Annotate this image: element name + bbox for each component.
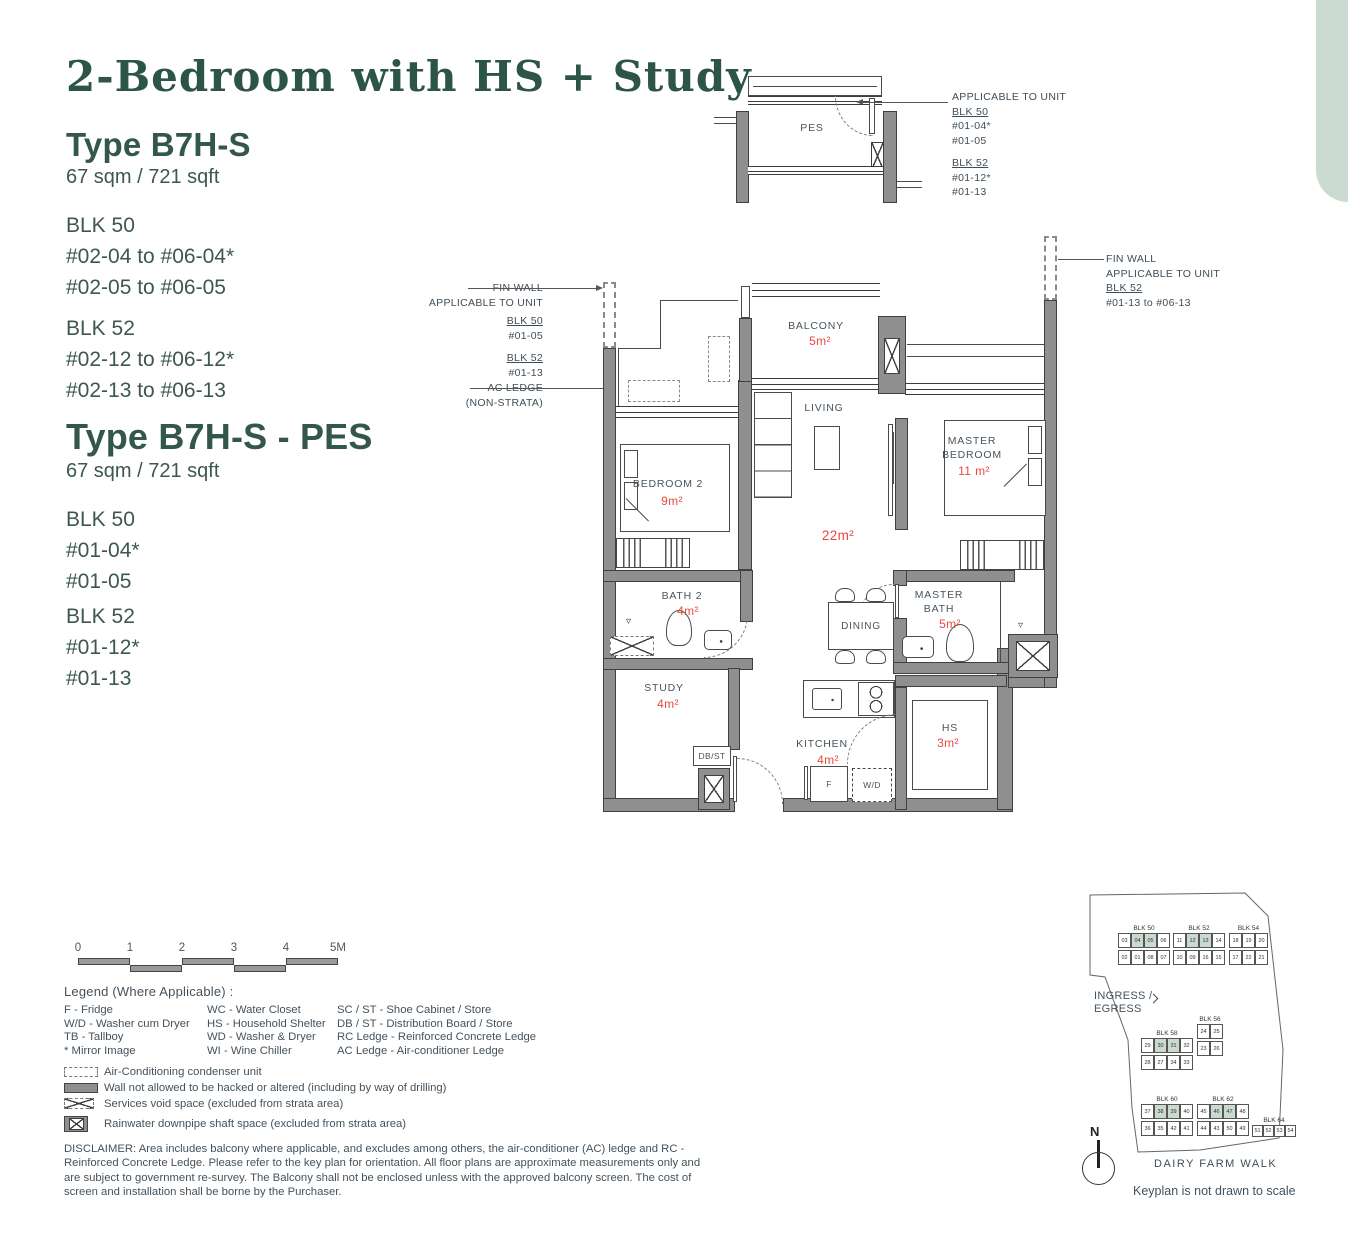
scale-segment [78,958,130,965]
legend-entry: * Mirror Image [64,1045,190,1059]
legend-symbol-label: Air-Conditioning condenser unit [104,1066,262,1078]
sage-decorative-shape [1316,0,1348,202]
ledge-line [660,300,738,301]
fin-wall-left-callout: FIN WALL APPLICABLE TO UNIT BLK 50 #01-0… [335,281,543,380]
type-b7hs-area: 67 sqm / 721 sqft [66,166,219,189]
fin-wall-right-callout: FIN WALL APPLICABLE TO UNIT BLK 52 #01-1… [1106,252,1220,310]
unit-range: #02-05 to #06-05 [66,272,234,303]
balcony-railing [752,283,880,297]
keyplan-unit: 47 [1223,1104,1236,1119]
basin [902,636,934,658]
kitchen-sink [812,688,842,710]
room-label-living: LIVING [804,402,843,414]
keyplan-unit-row: 45464748 [1197,1104,1249,1119]
keyplan-unit: 03 [1118,933,1131,948]
legend-entry: SC / ST - Shoe Cabinet / Store [337,1004,536,1018]
keyplan-block: BLK 603738394036354241 [1141,1096,1193,1136]
unit: #01-13 to #06-13 [1106,296,1220,311]
pes-applicable-callout: APPLICABLE TO UNIT BLK 50 #01-04* #01-05… [952,90,1066,200]
scale-tick: 2 [179,942,185,954]
keyplan-unit: 53 [1274,1125,1285,1137]
keyplan-unit: 44 [1197,1121,1210,1136]
keyplan-unit: 25 [1210,1024,1223,1039]
wall-segment [739,318,752,382]
scale-tick: 0 [75,942,81,954]
type-b7hs-blk52: BLK 52 #02-12 to #06-12* #02-13 to #06-1… [66,313,234,406]
type-b7hs-pes-blk52: BLK 52 #01-12* #01-13 [66,601,140,694]
legend-entry: DB / ST - Distribution Board / Store [337,1018,536,1032]
room-area-master-bedroom: 11 m² [958,464,990,478]
north-label: N [1090,1124,1099,1139]
rain-symbol-icon [64,1116,104,1132]
legend-entry: W/D - Washer cum Dryer [64,1018,190,1032]
room-label-bath2: BATH 2 [662,590,703,602]
keyplan-unit: 52 [1263,1125,1274,1137]
road-label: DAIRY FARM WALK [1154,1158,1277,1170]
keyplan-unit: 07 [1157,950,1170,965]
blk-name: BLK 52 [66,601,140,632]
shower-icon: ▿ [626,616,631,627]
keyplan-unit-row: 28273433 [1141,1055,1193,1070]
blk-name: BLK 52 [952,156,1066,171]
type-b7hs-pes-heading: Type B7H-S - PES [66,416,373,458]
type-b7hs-pes-area: 67 sqm / 721 sqft [66,460,219,483]
room-area-bedroom2: 9m² [661,494,683,508]
legend-title: Legend (Where Applicable) : [64,984,233,999]
north-compass-icon [1082,1152,1115,1185]
keyplan-unit-row: 2425 [1197,1024,1223,1039]
keyplan-block-name: BLK 50 [1118,925,1170,932]
legend-symbol-row: Rainwater downpipe shaft space (excluded… [64,1116,446,1131]
legend-symbol-row: Services void space (excluded from strat… [64,1096,446,1111]
unit-range: #01-12* [66,632,140,663]
legend-entry: HS - Household Shelter [207,1018,326,1032]
balcony-rail-return [741,286,750,318]
keyplan-unit: 13 [1199,933,1212,948]
keyplan-block: BLK 54181920172221 [1229,925,1268,965]
window [905,383,1044,395]
door-leaf [804,766,808,800]
type-b7hs-blk50: BLK 50 #02-04 to #06-04* #02-05 to #06-0… [66,210,234,303]
washer-dryer-box: W/D [852,768,892,802]
keyplan-unit: 49 [1236,1121,1249,1136]
unit: #01-05 [952,134,1066,149]
keyplan-unit: 10 [1173,950,1186,965]
pillow [1028,426,1042,454]
keyplan-unit: 18 [1229,933,1242,948]
legend-col-3: SC / ST - Shoe Cabinet / StoreDB / ST - … [337,1004,536,1058]
legend-symbol-label: Rainwater downpipe shaft space (excluded… [104,1118,406,1130]
arrow-icon [856,99,863,105]
keyplan-unit: 22 [1242,950,1255,965]
keyplan-unit: 17 [1229,950,1242,965]
ledge-line [907,344,1044,345]
keyplan-block-name: BLK 52 [1173,925,1225,932]
scale-segment [130,965,182,972]
legend-symbol-label: Wall not allowed to be hacked or altered… [104,1082,446,1094]
blk-name: BLK 52 [66,313,234,344]
unit: #01-12* [952,171,1066,186]
keyplan-unit: 19 [1242,933,1255,948]
blk-name: BLK 50 [952,105,1066,120]
keyplan-unit: 20 [1255,933,1268,948]
unit-range: #01-04* [66,535,140,566]
keyplan-unit: 36 [1141,1121,1154,1136]
scale-segment [286,958,338,965]
keyplan-unit: 21 [1255,950,1268,965]
chair [866,588,886,602]
keyplan-block-name: BLK 54 [1229,925,1268,932]
keyplan-unit: 12 [1186,933,1199,948]
legend-col-2: WC - Water ClosetHS - Household ShelterW… [207,1004,326,1058]
room-label-balcony: BALCONY [788,320,844,332]
keyplan-block-name: BLK 62 [1197,1096,1249,1103]
keyplan-unit-row: 29303132 [1141,1038,1193,1053]
shower-icon: ▿ [1018,620,1023,631]
keyplan-unit-row: 36354241 [1141,1121,1193,1136]
leader-line [468,288,598,289]
sliding-window [752,378,878,390]
ledge-line [714,117,736,118]
keyplan-unit: 05 [1144,933,1157,948]
keyplan-unit: 28 [1141,1055,1154,1070]
room-area-balcony: 5m² [809,334,831,348]
keyplan-unit: 39 [1167,1104,1180,1119]
legend-entry: F - Fridge [64,1004,190,1018]
wall-segment [728,668,740,750]
legend-entry: WI - Wine Chiller [207,1045,326,1059]
scale-segment [234,965,286,972]
unit-range: #02-12 to #06-12* [66,344,234,375]
scale-tick: 1 [127,942,133,954]
keyplan-unit: 16 [1199,950,1212,965]
room-label-master-bath: MASTER BATH [908,588,970,616]
callout-title: APPLICABLE TO UNIT [952,90,1066,105]
leader-line [862,102,948,103]
stove [858,682,894,716]
callout-line: APPLICABLE TO UNIT [335,296,543,311]
keyplan-unit: 32 [1180,1038,1193,1053]
keyplan-unit-row: 10091615 [1173,950,1225,965]
legend-symbols: Air-Conditioning condenser unitWall not … [64,1064,446,1132]
rainwater-shaft [884,338,900,374]
keyplan-block: BLK 624546474844435049 [1197,1096,1249,1136]
keyplan-unit: 30 [1154,1038,1167,1053]
room-label-master-bedroom: MASTER BEDROOM [928,434,1016,462]
scale-tick: 3 [231,942,237,954]
keyplan-unit: 48 [1236,1104,1249,1119]
keyplan-unit: 02 [1118,950,1131,965]
chair [835,588,855,602]
scale-segment [182,958,234,965]
keyplan-unit: 37 [1141,1104,1154,1119]
partition-line [1000,582,1001,662]
wardrobe [616,538,690,568]
legend-entry: AC Ledge - Air-conditioner Ledge [337,1045,536,1059]
dining-table: DINING [828,602,894,650]
ledge-line [618,348,661,349]
blk-name: BLK 50 [66,210,234,241]
keyplan-unit-row: 03040506 [1118,933,1170,948]
keyplan-unit: 33 [1180,1055,1193,1070]
room-area-kitchen: 4m² [817,753,839,767]
basin [704,630,732,650]
ledge-line [660,300,661,348]
ledge-line [618,348,619,408]
keyplan-unit: 04 [1131,933,1144,948]
blk-name: BLK 52 [1106,281,1220,296]
keyplan-unit-row: 37383940 [1141,1104,1193,1119]
floorplan-page: 2-Bedroom with HS + Study Type B7H-S 67 … [0,0,1348,1260]
ac-symbol-icon [64,1067,104,1077]
keyplan-block-name: BLK 56 [1197,1016,1223,1023]
keyplan-unit: 23 [1197,1041,1210,1056]
unit: #01-13 [952,185,1066,200]
page-title: 2-Bedroom with HS + Study [66,52,752,101]
legend-symbol-label: Services void space (excluded from strat… [104,1098,343,1110]
window-sill [748,166,883,175]
type-b7hs-pes-blk50: BLK 50 #01-04* #01-05 [66,504,140,597]
leader-line [470,388,606,389]
keyplan-unit: 09 [1186,950,1199,965]
room-label-hs: HS [942,722,958,734]
window [616,406,738,418]
fin-wall [603,282,616,348]
callout-line: (NON-STRATA) [335,396,543,411]
legend-entry: TB - Tallboy [64,1031,190,1045]
keyplan-unit-row: 02010807 [1118,950,1170,965]
scale-tick: 4 [283,942,289,954]
keyplan-block: BLK 6451525354 [1252,1117,1296,1137]
fridge-box: F [810,766,848,802]
callout-line: APPLICABLE TO UNIT [1106,267,1220,282]
wall-segment [895,675,1007,687]
scale-bar: 012345M [78,942,378,978]
keyplan-unit: 27 [1154,1055,1167,1070]
keyplan-unit: 50 [1223,1121,1236,1136]
keyplan-unit: 45 [1197,1104,1210,1119]
keyplan-block: BLK 582930313228273433 [1141,1030,1193,1070]
services-void [610,636,654,656]
room-area-bath2: 4m² [677,604,699,618]
wall-segment [893,662,1015,674]
keyplan-unit: 46 [1210,1104,1223,1119]
room-area-master-bath: 5m² [939,617,961,631]
keyplan-unit: 35 [1154,1121,1167,1136]
callout-line: FIN WALL [1106,252,1220,267]
keyplan-unit-row: 2326 [1197,1041,1223,1056]
legend-symbol-row: Air-Conditioning condenser unit [64,1064,446,1079]
wall-segment [895,418,908,530]
legend-col-1: F - FridgeW/D - Washer cum DryerTB - Tal… [64,1004,190,1058]
unit: #01-13 [335,366,543,381]
coffee-table [814,426,840,470]
keyplan-unit-row: 172221 [1229,950,1268,965]
sofa [754,392,792,498]
legend-entry: RC Ledge - Reinforced Concrete Ledge [337,1031,536,1045]
keyplan-block-name: BLK 64 [1252,1117,1296,1124]
keyplan-unit: 43 [1210,1121,1223,1136]
room-label-pes: PES [800,122,823,134]
keyplan-unit: 11 [1173,933,1186,948]
keyplan: INGRESS / EGRESS DAIRY FARM WALK Keyplan… [1080,878,1342,1238]
keyplan-unit: 26 [1210,1041,1223,1056]
keyplan-unit: 31 [1167,1038,1180,1053]
keyplan-unit: 06 [1157,933,1170,948]
void-symbol-icon [64,1098,104,1109]
keyplan-unit: 08 [1144,950,1157,965]
keyplan-unit-row: 11121314 [1173,933,1225,948]
unit: #01-05 [335,329,543,344]
keyplan-unit: 14 [1212,933,1225,948]
blk-name: BLK 50 [335,314,543,329]
keyplan-unit-row: 44435049 [1197,1121,1249,1136]
legend-entry: WC - Water Closet [207,1004,326,1018]
ledge-line [714,123,736,124]
chair [835,650,855,664]
room-area-hs: 3m² [937,736,959,750]
dbst-box: DB/ST [693,746,731,766]
door-arc [847,714,897,764]
keyplan-unit: 54 [1285,1125,1296,1137]
keyplan-unit: 38 [1154,1104,1167,1119]
keyplan-block: BLK 5624252326 [1197,1016,1223,1056]
wall-segment [603,570,753,582]
legend-entry: WD - Washer & Dryer [207,1031,326,1045]
wall-segment [736,111,749,203]
keyplan-unit: 40 [1180,1104,1193,1119]
unit: #01-04* [952,119,1066,134]
wall-segment [738,380,752,570]
room-label-study: STUDY [644,682,684,694]
wall-segment [883,111,897,203]
legend-symbol-row: Wall not allowed to be hacked or altered… [64,1080,446,1095]
ledge-line [897,187,922,188]
ac-condenser-unit [628,380,680,402]
blk-name: BLK 50 [66,504,140,535]
keyplan-block: BLK 521112131410091615 [1173,925,1225,965]
fin-wall [1044,236,1057,300]
arrow-icon [596,285,603,291]
room-label-kitchen: KITCHEN [796,738,848,750]
keyplan-unit-row: 51525354 [1252,1125,1296,1137]
rainwater-shaft [704,775,724,803]
room-area-living: 22m² [822,528,854,543]
door-leaf [895,584,899,618]
unit-range: #01-05 [66,566,140,597]
wardrobe [960,540,1044,570]
keyplan-unit: 29 [1141,1038,1154,1053]
entrance-door-arc [737,758,783,804]
ledge-line [907,356,1044,357]
type-b7hs-heading: Type B7H-S [66,126,251,164]
room-area-study: 4m² [657,697,679,711]
keyplan-unit: 41 [1180,1121,1193,1136]
ledge-line [897,181,922,182]
keyplan-unit: 01 [1131,950,1144,965]
ac-condenser-unit [708,336,730,382]
keyplan-unit: 15 [1212,950,1225,965]
keyplan-unit: 42 [1167,1121,1180,1136]
disclaimer-text: DISCLAIMER: Area includes balcony where … [64,1142,714,1200]
chair [866,650,886,664]
leader-line [1058,259,1104,260]
keyplan-unit-row: 181920 [1229,933,1268,948]
keyplan-block-name: BLK 58 [1141,1030,1193,1037]
ac-ledge-callout: AC LEDGE (NON-STRATA) [335,381,543,410]
room-label-bedroom2: BEDROOM 2 [633,478,703,490]
wall-segment [893,570,1015,582]
keyplan-unit: 34 [1167,1055,1180,1070]
unit-range: #02-04 to #06-04* [66,241,234,272]
rainwater-shaft [1016,641,1050,671]
pillow [624,450,638,478]
sliding-door [888,424,893,516]
unit-range: #01-13 [66,663,140,694]
ingress-egress-label: INGRESS / EGRESS [1094,990,1152,1016]
ledge-line [753,86,877,87]
keyplan-unit: 24 [1197,1024,1210,1039]
keyplan-block-name: BLK 60 [1141,1096,1193,1103]
pillow [1028,458,1042,486]
wall-symbol-icon [64,1083,104,1093]
keyplan-block: BLK 500304050602010807 [1118,925,1170,965]
keyplan-unit: 51 [1252,1125,1263,1137]
blk-name: BLK 52 [335,351,543,366]
unit-range: #02-13 to #06-13 [66,375,234,406]
scale-tick: 5M [330,942,346,954]
keyplan-note: Keyplan is not drawn to scale [1133,1184,1296,1198]
